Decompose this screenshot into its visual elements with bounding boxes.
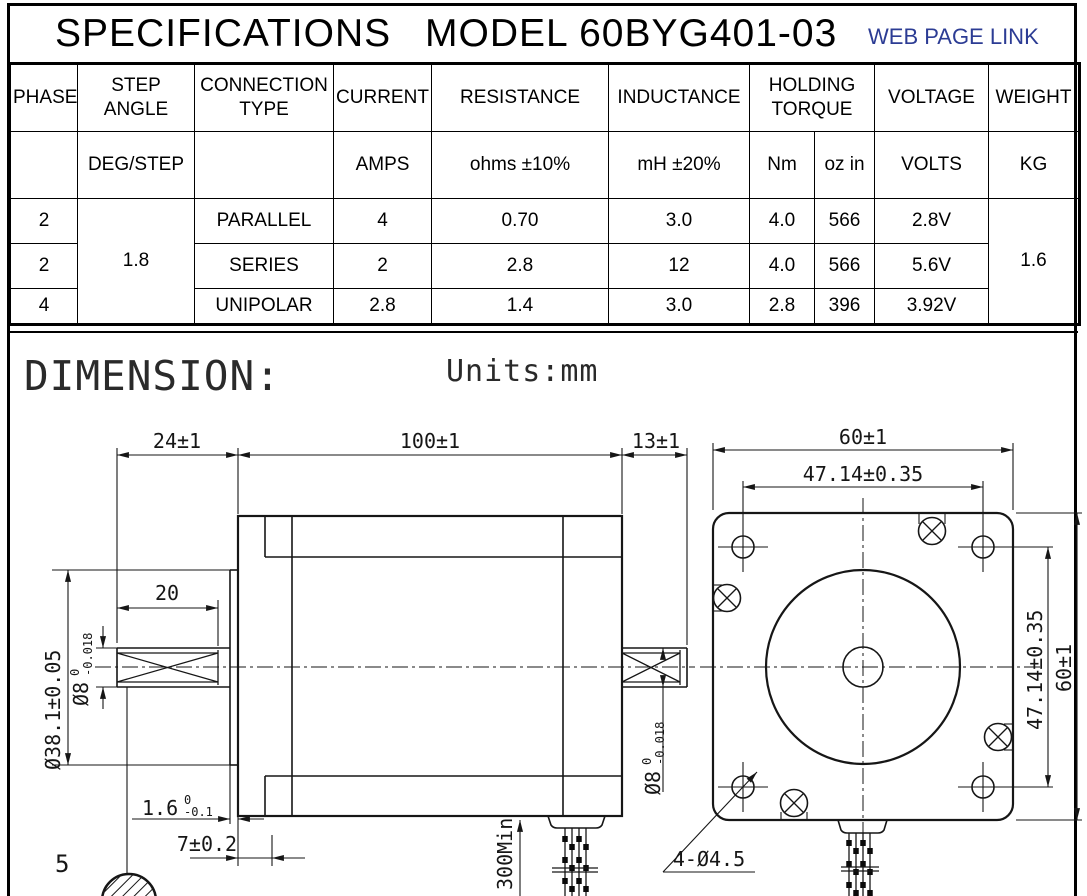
svg-text:0: 0 (640, 758, 654, 765)
dim-shaft-dia: Ø8 0 -0.018 (68, 633, 95, 706)
motor-body-outline (238, 516, 622, 816)
cell-phase-unipolar: 4 (10, 289, 78, 325)
dim-cable-len: 300Min (493, 818, 517, 890)
cell-current-series: 2 (334, 244, 432, 289)
cell-step-angle-value: 1.8 (78, 199, 195, 325)
unit-cell-current: AMPS (334, 132, 432, 199)
svg-text:60±1: 60±1 (1052, 644, 1076, 692)
unit-cell-step-angle: DEG/STEP (78, 132, 195, 199)
model-number: MODEL 60BYG401-03 (425, 12, 837, 56)
side-length-dims (117, 448, 687, 645)
col-header-current: CURRENT (334, 64, 432, 132)
cell-connection-unipolar: UNIPOLAR (195, 289, 334, 325)
col-header-resistance: RESISTANCE (432, 64, 609, 132)
dim-mounting-holes: 4-Ø4.5 (673, 847, 745, 871)
svg-text:0: 0 (68, 669, 82, 676)
screw-right (985, 724, 1014, 751)
cell-ozin-unipolar: 396 (815, 289, 875, 325)
dim-rear-shaft-dia: Ø8 0 -0.018 (640, 722, 667, 795)
cell-inductance-parallel: 3.0 (609, 199, 750, 244)
cell-nm-series: 4.0 (750, 244, 815, 289)
web-page-link[interactable]: WEB PAGE LINK (868, 24, 1039, 50)
cell-phase-parallel: 2 (10, 199, 78, 244)
unit-cell-phase (10, 132, 78, 199)
unit-cell-torque-ozin: oz in (815, 132, 875, 199)
unit-cell-inductance: mH ±20% (609, 132, 750, 199)
datasheet-page: SPECIFICATIONS MODEL 60BYG401-03 WEB PAG… (0, 0, 1087, 896)
dim-hole-spacing-v: 47.14±0.35 (1023, 610, 1047, 730)
col-header-step-angle: STEP ANGLE (78, 64, 195, 132)
svg-text:300Min: 300Min (493, 818, 517, 890)
svg-text:Ø8: Ø8 (69, 682, 93, 706)
unit-cell-voltage: VOLTS (875, 132, 989, 199)
dim-front-height: 60±1 (1052, 644, 1076, 692)
screw-left (713, 585, 741, 612)
cell-ozin-parallel: 566 (815, 199, 875, 244)
dim-pilot-depth: 7±0.2 (177, 832, 237, 856)
cell-nm-parallel: 4.0 (750, 199, 815, 244)
cell-voltage-unipolar: 3.92V (875, 289, 989, 325)
dim-rear-shaft-len: 13±1 (632, 429, 680, 453)
spec-table: PHASE STEP ANGLE CONNECTION TYPE CURRENT… (8, 62, 1081, 326)
cell-resistance-unipolar: 1.4 (432, 289, 609, 325)
svg-text:-0.018: -0.018 (81, 633, 95, 676)
screw-top (919, 513, 946, 545)
cell-inductance-unipolar: 3.0 (609, 289, 750, 325)
cell-voltage-series: 5.6V (875, 244, 989, 289)
unit-cell-torque-nm: Nm (750, 132, 815, 199)
cell-connection-parallel: PARALLEL (195, 199, 334, 244)
cell-phase-series: 2 (10, 244, 78, 289)
cell-nm-unipolar: 2.8 (750, 289, 815, 325)
screw-bottom (781, 790, 808, 821)
front-view: 60±1 47.14±0.35 47.14±0.35 60±1 4-Ø4.5 (663, 425, 1082, 896)
flat-length-dim (117, 600, 218, 646)
section-label: 5 (55, 850, 69, 878)
col-header-voltage: VOLTAGE (875, 64, 989, 132)
cell-current-parallel: 4 (334, 199, 432, 244)
cell-connection-series: SERIES (195, 244, 334, 289)
svg-text:47.14±0.35: 47.14±0.35 (1023, 610, 1047, 730)
dim-flat-len: 20 (155, 581, 179, 605)
col-header-inductance: INDUCTANCE (609, 64, 750, 132)
cell-current-unipolar: 2.8 (334, 289, 432, 325)
unit-cell-resistance: ohms ±10% (432, 132, 609, 199)
dim-shaft-len: 24±1 (153, 429, 201, 453)
cell-resistance-series: 2.8 (432, 244, 609, 289)
page-title: SPECIFICATIONS (55, 12, 391, 56)
dim-boss-dia: Ø38.1±0.05 (41, 650, 65, 770)
dim-body-len: 100±1 (400, 429, 460, 453)
cell-weight-value: 1.6 (989, 199, 1080, 325)
col-header-connection: CONNECTION TYPE (195, 64, 334, 132)
dim-hole-spacing-h: 47.14±0.35 (803, 462, 923, 486)
cell-inductance-series: 12 (609, 244, 750, 289)
shaft-section-circle (102, 874, 156, 896)
dimension-drawing: 24±1 100±1 13±1 20 Ø38.1±0.05 Ø8 0 -0.01… (0, 330, 1087, 896)
col-header-holding-torque: HOLDING TORQUE (750, 64, 875, 132)
dim-front-width: 60±1 (839, 425, 887, 449)
cell-voltage-parallel: 2.8V (875, 199, 989, 244)
shaft-section-detail (102, 687, 156, 896)
svg-text:Ø8: Ø8 (641, 771, 665, 795)
dim-boss-height: 1.6 0 -0.1 (142, 793, 213, 820)
cell-resistance-parallel: 0.70 (432, 199, 609, 244)
unit-cell-connection (195, 132, 334, 199)
svg-text:1.6: 1.6 (142, 796, 178, 820)
cell-ozin-series: 566 (815, 244, 875, 289)
col-header-weight: WEIGHT (989, 64, 1080, 132)
col-header-phase: PHASE (10, 64, 78, 132)
side-cable (548, 816, 605, 896)
svg-text:-0.018: -0.018 (653, 722, 667, 765)
svg-text:Ø38.1±0.05: Ø38.1±0.05 (41, 650, 65, 770)
svg-text:-0.1: -0.1 (184, 805, 213, 819)
side-view: 24±1 100±1 13±1 20 Ø38.1±0.05 Ø8 0 -0.01… (41, 429, 695, 896)
unit-cell-weight: KG (989, 132, 1080, 199)
